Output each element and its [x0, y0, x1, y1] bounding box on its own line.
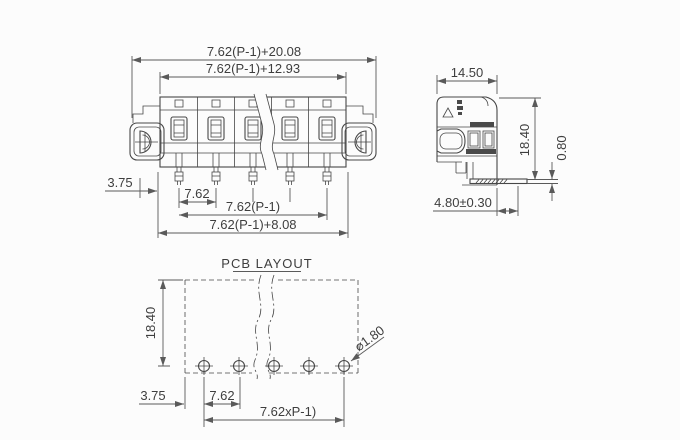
technical-drawing: 7.62(P-1)+20.08 7.62(P-1)+12.93 3.75 7.6…: [0, 0, 680, 440]
recycling-triangle-mark: [443, 108, 453, 117]
pcb-hole: [230, 357, 248, 375]
drawing-canvas: 7.62(P-1)+20.08 7.62(P-1)+12.93 3.75 7.6…: [0, 0, 680, 440]
dim-front-overall: 7.62(P-1)+20.08: [207, 44, 301, 59]
pcb-outline: [185, 275, 358, 379]
side-body: [437, 97, 497, 185]
dim-front-offset: 3.75: [107, 175, 132, 190]
dim-pcb-hole-diameter: ⌀1.80: [352, 323, 388, 355]
contact-cell: [171, 100, 187, 185]
side-view: 14.50 18.40 0.80 4.80±0.30: [433, 65, 569, 216]
dim-front-pitch-span: 7.62(P-1): [226, 199, 280, 214]
pcb-layout-title: PCB LAYOUT: [221, 256, 312, 271]
pcb-hole: [300, 357, 318, 375]
contact-cell: [208, 100, 224, 185]
side-view-dimensions: 14.50 18.40 0.80 4.80±0.30: [433, 65, 569, 216]
pcb-holes: [195, 357, 353, 375]
dim-front-body: 7.62(P-1)+12.93: [206, 61, 300, 76]
dim-pcb-pitch: 7.62: [209, 388, 234, 403]
connector-body: [160, 97, 346, 167]
dim-front-pin-span: 7.62(P-1)+8.08: [209, 217, 296, 232]
contact-cell: [282, 100, 298, 185]
dim-side-depth: 14.50: [451, 65, 484, 80]
mounting-flange-left: [130, 106, 164, 160]
front-view: 7.62(P-1)+20.08 7.62(P-1)+12.93 3.75 7.6…: [105, 44, 376, 238]
contact-positions: [171, 100, 335, 185]
pcb-layout: PCB LAYOUT 18.40 ⌀1.80 3.75 7.62: [139, 256, 387, 427]
dim-side-height: 18.40: [517, 124, 532, 157]
front-view-dimensions: 7.62(P-1)+20.08 7.62(P-1)+12.93 3.75 7.6…: [105, 44, 376, 238]
dim-pcb-span: 7.62xP-1): [260, 404, 316, 419]
pcb-hole: [335, 357, 353, 375]
pcb-hole: [195, 357, 213, 375]
contact-cell: [319, 100, 335, 185]
dim-side-pin-thickness: 0.80: [554, 135, 569, 160]
dim-pcb-offset: 3.75: [140, 388, 165, 403]
mounting-flange-right: [342, 106, 376, 160]
solder-pin: [470, 179, 527, 184]
dim-pcb-height: 18.40: [143, 307, 158, 340]
dim-front-pitch: 7.62: [184, 186, 209, 201]
dim-side-pin-length: 4.80±0.30: [434, 195, 492, 210]
